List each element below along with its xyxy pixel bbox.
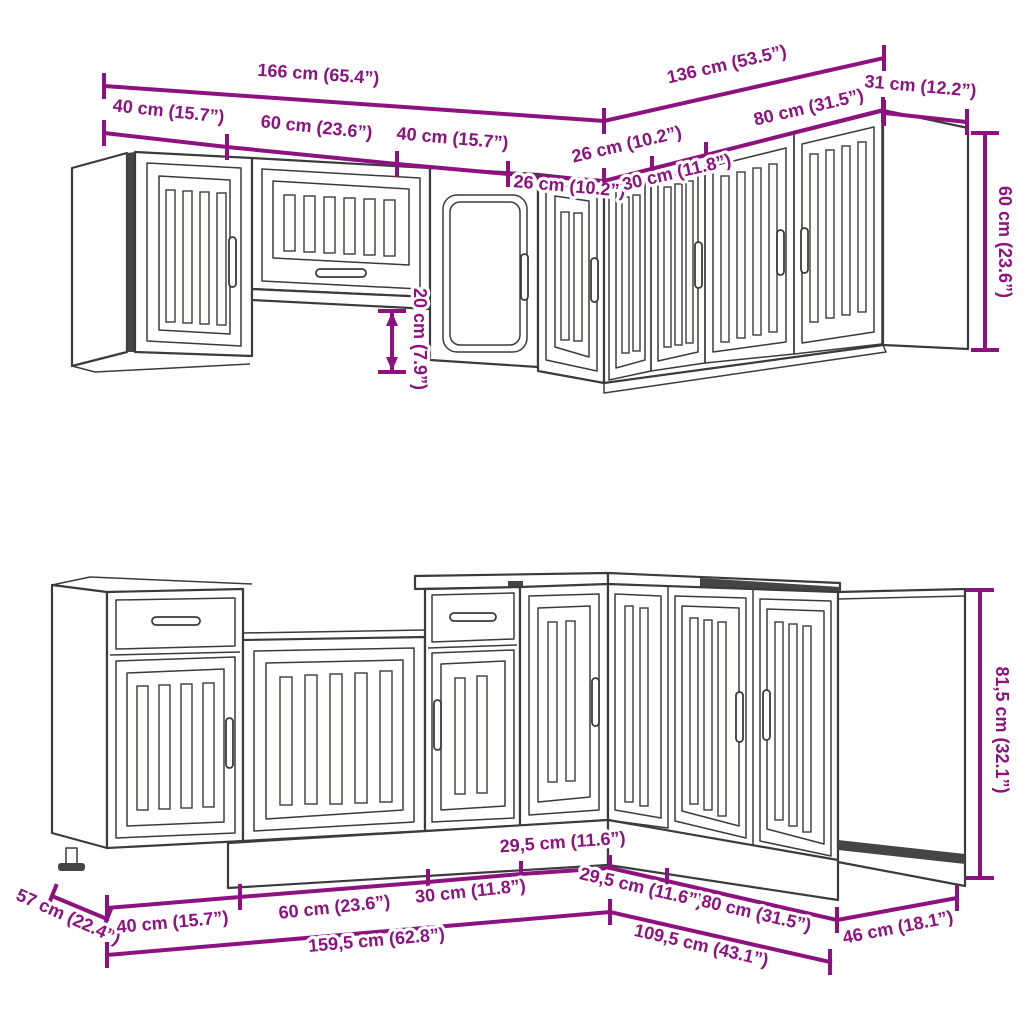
dimension-label-base-front-unit-2: 60 cm (23.6”) <box>278 891 392 923</box>
wall-cabinet-26-front <box>538 174 604 383</box>
dimension-label-wall-front-total: 166 cm (65.4”) <box>257 60 380 88</box>
dimension-label-base-front-unit-1: 40 cm (15.7”) <box>116 907 229 937</box>
dimension-label-base-right-unit-2: 80 cm (31.5”) <box>700 891 814 936</box>
drawer-handle <box>152 617 200 625</box>
diagram-canvas: 166 cm (65.4”) 136 cm (53.5”) 31 cm (12.… <box>0 0 1024 1024</box>
drawer-handle <box>450 613 496 621</box>
dimension-label-wall-front-unit-3: 40 cm (15.7”) <box>396 123 509 153</box>
wall-left-side-panel <box>72 153 127 366</box>
door-handle <box>521 254 528 300</box>
dimension-label-base-front-total: 159,5 cm (62.8”) <box>307 924 445 956</box>
door-handle <box>763 690 770 740</box>
wall-left-dark-edge <box>127 152 135 352</box>
base-cabinet-40 <box>107 589 243 848</box>
base-left-side-panel <box>52 585 107 848</box>
cabinet-leg <box>58 848 85 871</box>
door-handle <box>592 678 599 726</box>
wall-cabinet-angled-run <box>604 110 886 393</box>
base-cabinet-corner-front <box>520 584 608 826</box>
dimension-label-base-right-total: 109,5 cm (43.1”) <box>632 920 770 970</box>
door-handle <box>801 228 808 273</box>
wall-cabinet-40-glass <box>430 168 538 367</box>
dimension-label-wall-side-depth: 31 cm (12.2”) <box>864 71 977 101</box>
base-cabinet-60 <box>243 630 425 841</box>
base-cabinet-30 <box>425 587 520 831</box>
base-cabinet-angled-run <box>608 584 838 862</box>
dimension-label-wall-right-total: 136 cm (53.5”) <box>665 41 788 88</box>
dimension-label-base-height: 81,5 cm (32.1”) <box>992 666 1012 793</box>
dimension-label-wall-front-unit-2: 60 cm (23.6”) <box>260 111 374 143</box>
wall-right-side-panel <box>883 110 968 349</box>
dimension-label-wall-front-unit-1: 40 cm (15.7”) <box>112 95 226 127</box>
door-handle <box>226 718 233 768</box>
wall-left-underside-line <box>72 364 250 372</box>
dimension-line-wall-offset <box>380 311 404 372</box>
door-handle <box>316 269 366 277</box>
wall-cabinet-40-tall <box>135 152 252 356</box>
wall-cabinet-row <box>72 110 968 393</box>
base-left-top-edge <box>52 577 252 585</box>
kitchen-cabinet-dimension-diagram: 166 cm (65.4”) 136 cm (53.5”) 31 cm (12.… <box>0 0 1024 1024</box>
base-right-side-panel <box>838 589 965 886</box>
dimension-label-wall-offset: 20 cm (7.9”) <box>410 288 430 390</box>
dimension-label-wall-right-unit-1: 26 cm (10.2”) <box>570 122 684 167</box>
dimension-label-base-side-right: 46 cm (18.1”) <box>841 907 955 948</box>
wall-cabinet-60-short <box>252 158 430 309</box>
door-handle <box>229 237 236 287</box>
dimension-label-wall-height: 60 cm (23.6”) <box>995 186 1015 298</box>
door-handle <box>591 258 598 302</box>
door-handle <box>777 230 784 275</box>
door-handle <box>695 242 702 288</box>
door-handle <box>736 692 743 742</box>
door-handle <box>434 700 441 750</box>
